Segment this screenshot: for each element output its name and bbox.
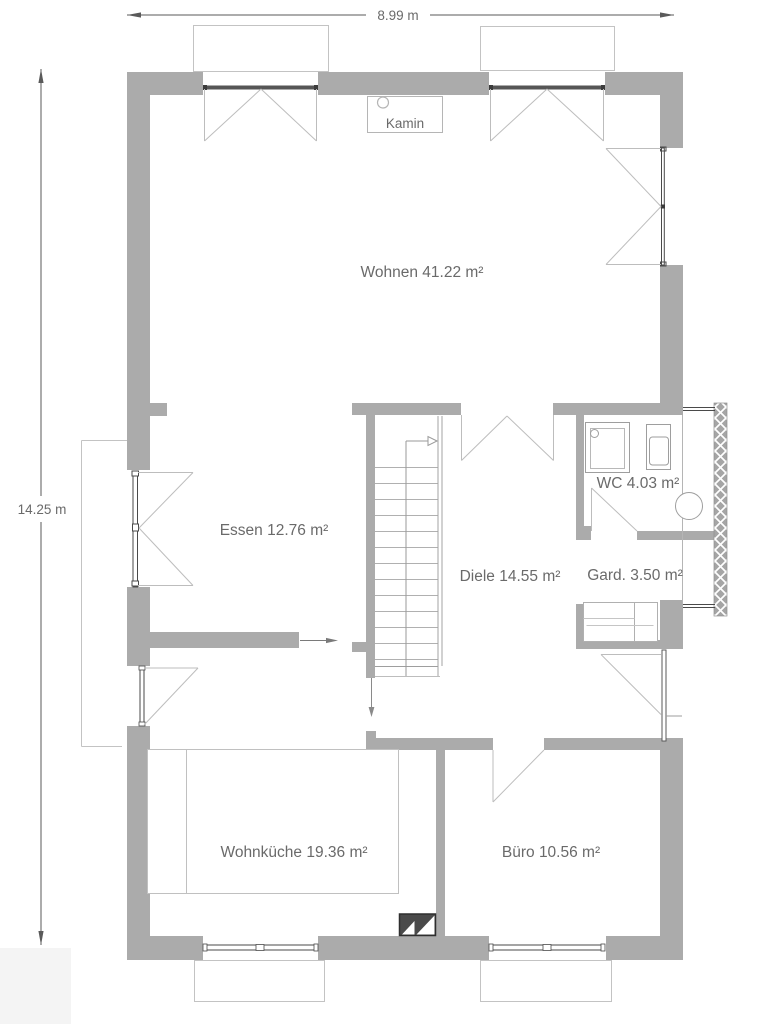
svg-text:Diele 14.55 m²: Diele 14.55 m² bbox=[460, 568, 561, 585]
svg-text:Kamin: Kamin bbox=[386, 116, 424, 131]
svg-text:Gard. 3.50 m²: Gard. 3.50 m² bbox=[587, 567, 683, 584]
svg-text:14.25 m: 14.25 m bbox=[18, 502, 67, 517]
svg-text:Büro 10.56 m²: Büro 10.56 m² bbox=[502, 844, 600, 861]
svg-text:WC 4.03 m²: WC 4.03 m² bbox=[597, 475, 680, 492]
svg-text:8.99 m: 8.99 m bbox=[377, 8, 418, 23]
svg-text:Wohnen 41.22 m²: Wohnen 41.22 m² bbox=[361, 264, 484, 281]
svg-text:Wohnküche 19.36 m²: Wohnküche 19.36 m² bbox=[220, 844, 367, 861]
svg-text:Essen 12.76 m²: Essen 12.76 m² bbox=[220, 522, 329, 539]
